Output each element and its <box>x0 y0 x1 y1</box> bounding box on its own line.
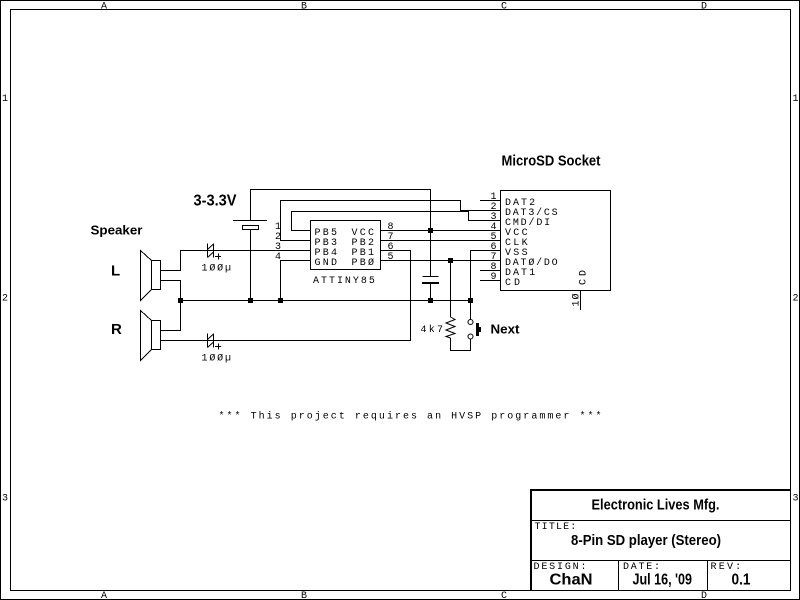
svg-text:1ØØµ: 1ØØµ <box>202 353 232 365</box>
svg-text:Speaker: Speaker <box>91 223 143 238</box>
svg-text:1ØØµ: 1ØØµ <box>202 263 232 275</box>
svg-text:Jul 16, '09: Jul 16, '09 <box>633 572 693 589</box>
svg-text:CD: CD <box>505 278 520 289</box>
svg-text:*** This project requires an H: *** This project requires an HVSP progra… <box>219 411 602 423</box>
svg-text:C: C <box>501 591 507 600</box>
svg-text:ChaN: ChaN <box>550 572 593 589</box>
svg-text:Next: Next <box>491 322 521 337</box>
svg-text:Electronic Lives Mfg.: Electronic Lives Mfg. <box>592 498 720 514</box>
svg-text:ATTINY85: ATTINY85 <box>313 276 375 287</box>
svg-text:CD: CD <box>579 270 590 285</box>
svg-text:B: B <box>301 2 307 13</box>
svg-text:D: D <box>701 591 707 600</box>
svg-text:2: 2 <box>793 294 799 305</box>
svg-text:5: 5 <box>388 252 394 263</box>
svg-text:8-Pin SD player (Stereo): 8-Pin SD player (Stereo) <box>571 533 721 549</box>
svg-text:4k7: 4k7 <box>421 324 444 336</box>
svg-text:3: 3 <box>2 494 8 505</box>
svg-text:R: R <box>111 321 122 338</box>
svg-text:1: 1 <box>793 94 799 105</box>
svg-text:A: A <box>101 2 107 13</box>
svg-text:PBØ: PBØ <box>352 257 375 269</box>
svg-text:2: 2 <box>2 294 8 305</box>
svg-text:3-3.3V: 3-3.3V <box>194 193 238 210</box>
svg-text:B: B <box>301 591 307 600</box>
svg-text:1: 1 <box>2 94 8 105</box>
svg-text:A: A <box>101 591 107 600</box>
svg-text:MicroSD Socket: MicroSD Socket <box>502 152 601 169</box>
svg-text:L: L <box>111 262 120 279</box>
svg-text:TITLE:: TITLE: <box>535 522 577 533</box>
svg-text:C: C <box>501 2 507 13</box>
svg-text:GND: GND <box>315 258 338 269</box>
svg-text:9: 9 <box>491 272 497 283</box>
svg-text:D: D <box>701 2 707 13</box>
svg-text:3: 3 <box>793 494 799 505</box>
svg-text:0.1: 0.1 <box>732 572 751 589</box>
